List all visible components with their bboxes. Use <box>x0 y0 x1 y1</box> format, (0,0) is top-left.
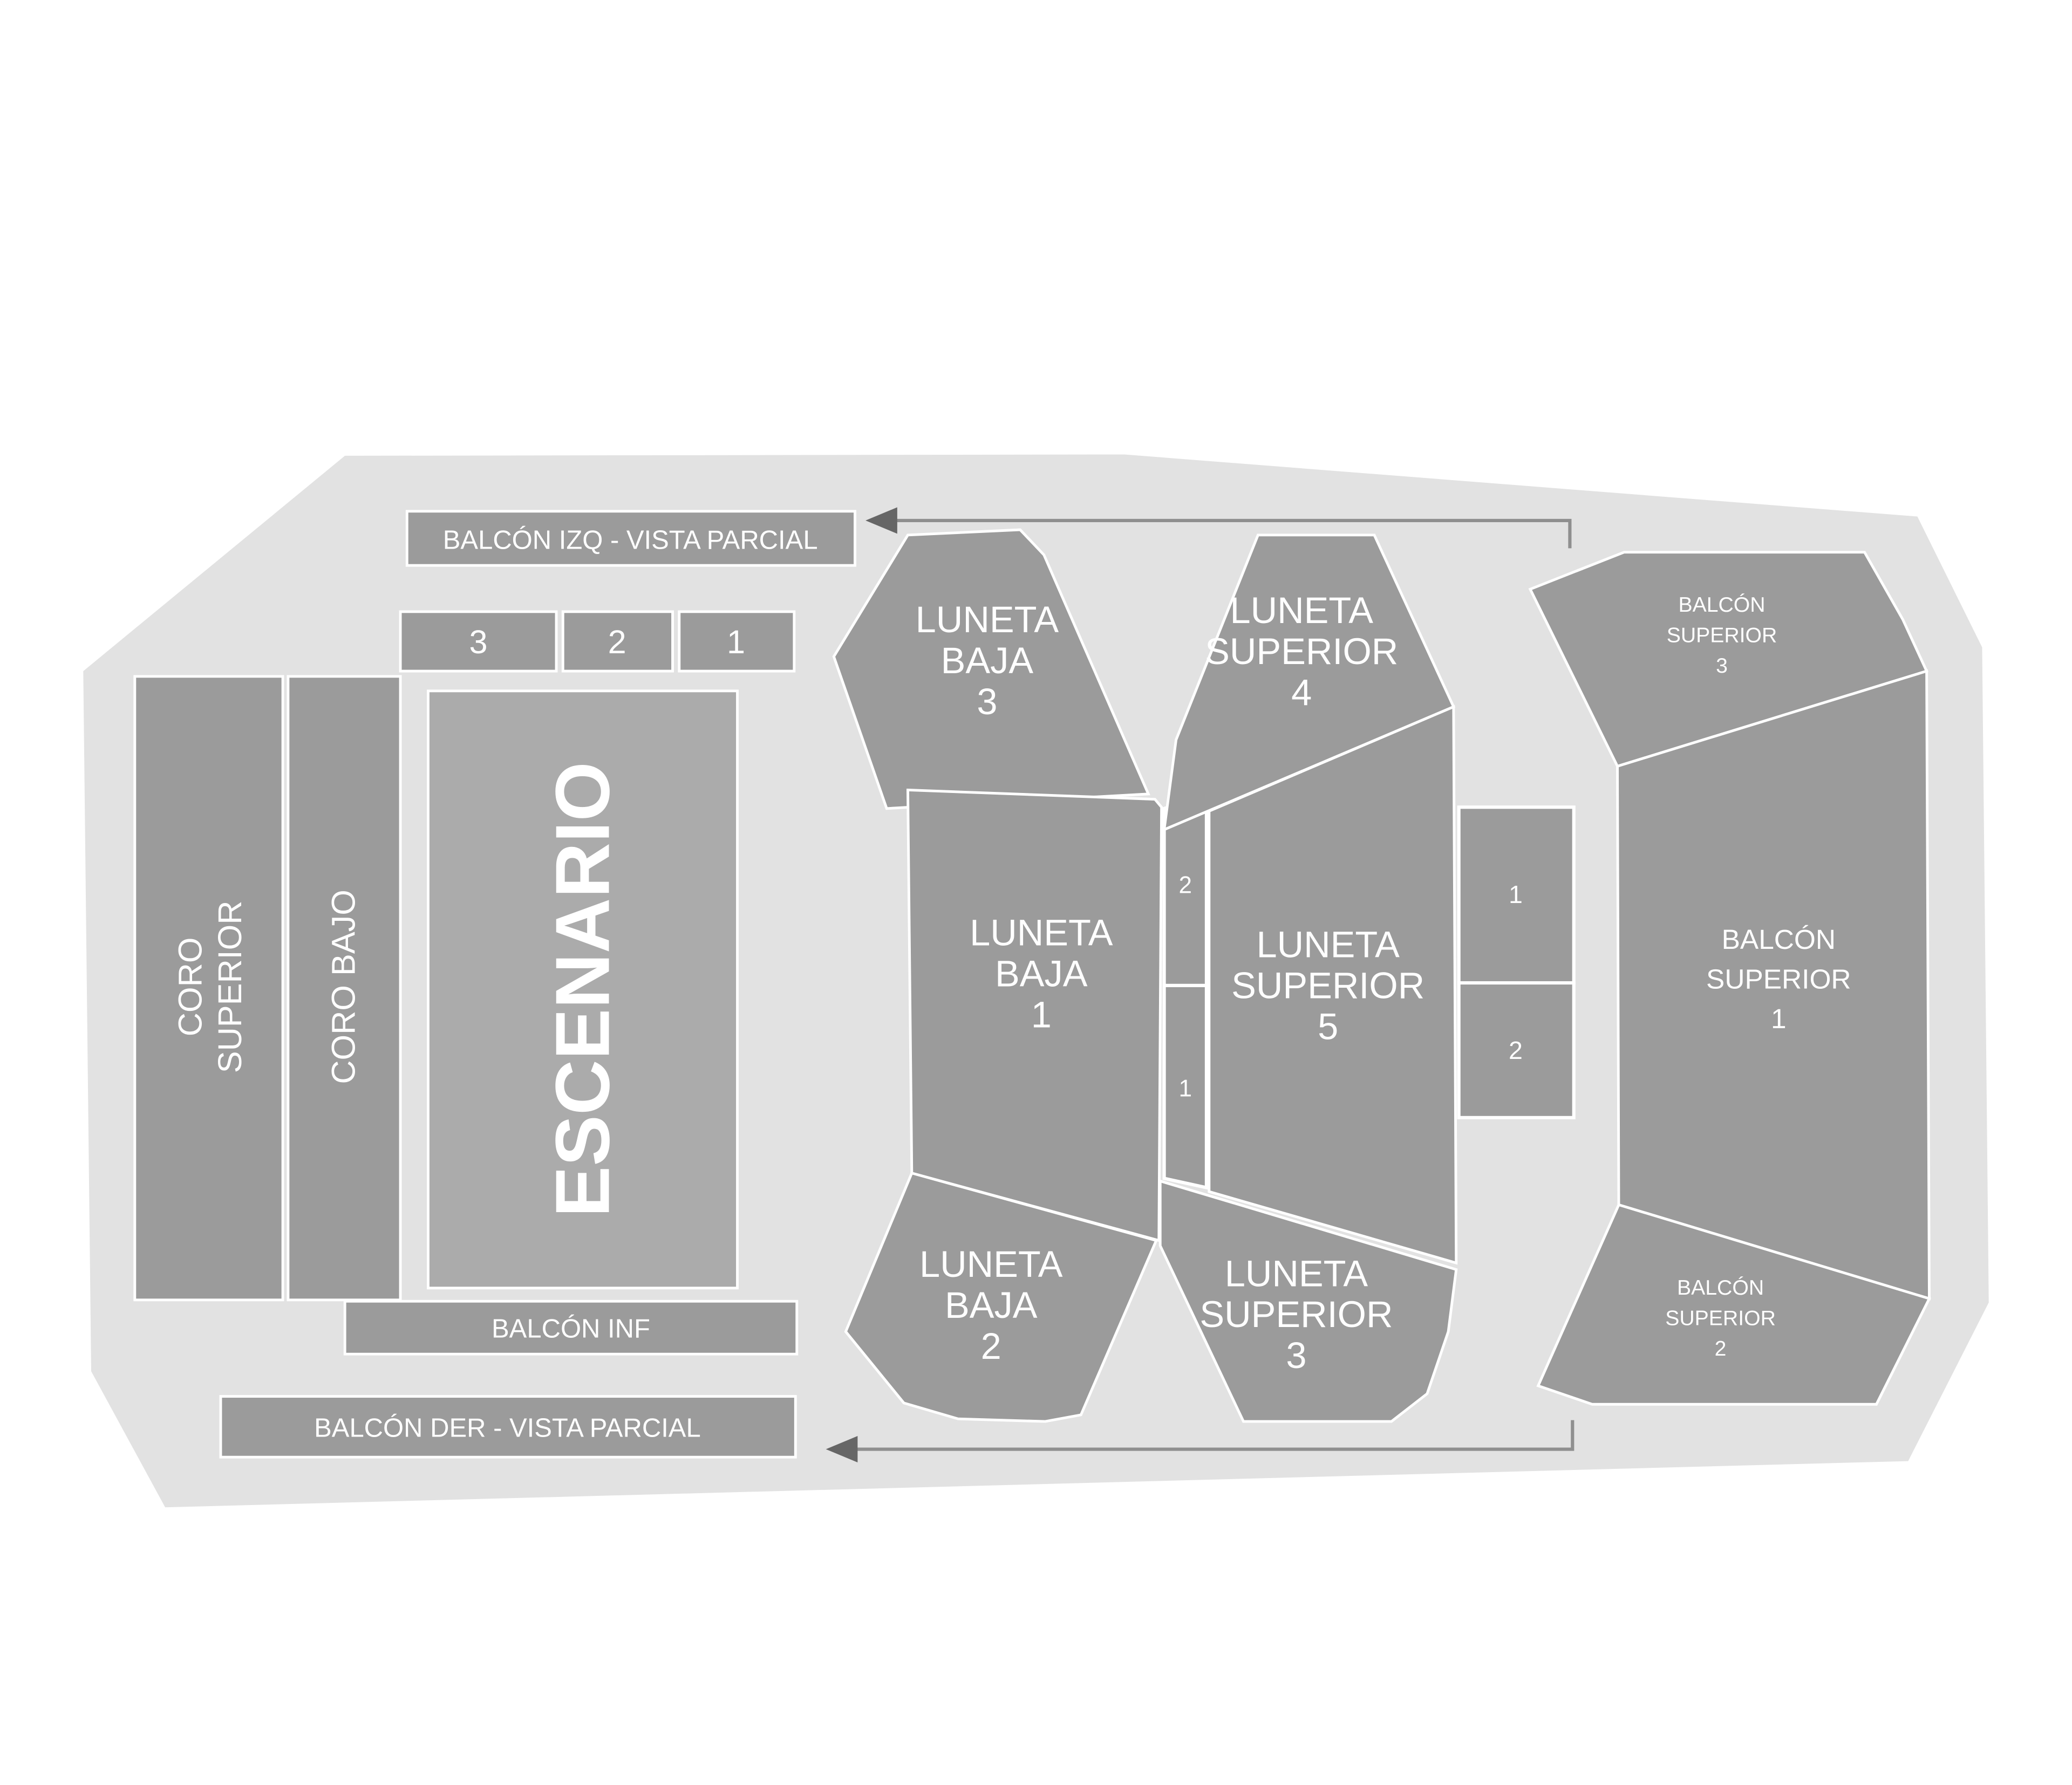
section-label: LUNETA <box>1257 924 1400 966</box>
section-label: 5 <box>1318 1006 1338 1047</box>
section-label: BALCÓN INF <box>492 1315 650 1344</box>
section-label: BAJA <box>945 1284 1038 1326</box>
section-stage-row-1[interactable]: 1 <box>679 612 794 671</box>
section-label: 1 <box>1031 994 1052 1035</box>
section-label: 3 <box>1716 654 1728 678</box>
section-label: 3 <box>1286 1335 1306 1376</box>
section-label: BALCÓN <box>1678 593 1765 617</box>
section-label: SUPERIOR <box>1667 624 1777 647</box>
section-stage-row-3[interactable]: 3 <box>400 612 556 671</box>
section-label: LUNETA <box>916 599 1059 640</box>
section-label: SUPERIOR <box>1665 1307 1776 1330</box>
section-label: 2 <box>1715 1337 1727 1360</box>
section-label: BALCÓN <box>1722 924 1836 955</box>
section-balcon-der[interactable]: BALCÓN DER - VISTA PARCIAL <box>221 1397 795 1458</box>
section-label: 2 <box>1178 872 1192 898</box>
section-label: 1 <box>1771 1003 1787 1034</box>
section-luneta-baja-1[interactable]: LUNETA BAJA 1 <box>908 790 1161 1240</box>
stage-label: ESCENARIO <box>540 762 626 1217</box>
section-label: CORO <box>172 938 209 1037</box>
section-label: 2 <box>981 1325 1001 1367</box>
section-label: BALCÓN IZQ - VISTA PARCIAL <box>443 526 818 555</box>
section-label: LUNETA <box>1225 1253 1368 1294</box>
section-label: LUNETA <box>919 1243 1063 1285</box>
section-label: 2 <box>608 624 626 660</box>
section-label: BALCÓN <box>1677 1276 1764 1300</box>
section-stage-row-2[interactable]: 2 <box>563 612 672 671</box>
section-label: 1 <box>727 624 745 660</box>
section-label: LUNETA <box>970 912 1113 953</box>
section-label: BAJA <box>995 953 1088 994</box>
section-label: SUPERIOR <box>212 901 248 1073</box>
section-label: SUPERIOR <box>1706 963 1851 995</box>
section-balcon-superior-1[interactable]: BALCÓN SUPERIOR 1 <box>1618 671 1930 1298</box>
section-label: LUNETA <box>1230 590 1374 631</box>
section-coro-superior-shape[interactable] <box>135 676 283 1300</box>
section-label: SUPERIOR <box>1199 1294 1393 1335</box>
section-label: 3 <box>469 624 488 660</box>
section-label: 3 <box>977 681 997 722</box>
section-label: 1 <box>1509 880 1523 908</box>
stage-escenario: ESCENARIO <box>428 691 737 1288</box>
section-right-box-2[interactable]: 2 <box>1459 983 1574 1118</box>
section-label: 4 <box>1291 672 1312 713</box>
section-label: 1 <box>1178 1075 1192 1102</box>
section-label: BALCÓN DER - VISTA PARCIAL <box>314 1413 701 1442</box>
section-label: SUPERIOR <box>1231 965 1424 1006</box>
section-coro-bajo[interactable]: CORO BAJO <box>288 676 400 1300</box>
section-right-box-1[interactable]: 1 <box>1459 807 1574 983</box>
section-label: BAJA <box>941 640 1034 681</box>
section-label: CORO BAJO <box>325 890 362 1084</box>
section-label: 2 <box>1509 1036 1523 1064</box>
seating-map: BALCÓN IZQ - VISTA PARCIAL 3 2 1 CORO SU… <box>0 0 2072 1785</box>
section-balcon-izq[interactable]: BALCÓN IZQ - VISTA PARCIAL <box>407 511 855 565</box>
section-coro-superior[interactable]: CORO SUPERIOR <box>135 676 283 1300</box>
section-luneta-strip-1[interactable]: 1 <box>1164 986 1207 1188</box>
section-label: SUPERIOR <box>1205 631 1398 672</box>
section-balcon-inf[interactable]: BALCÓN INF <box>345 1301 797 1354</box>
